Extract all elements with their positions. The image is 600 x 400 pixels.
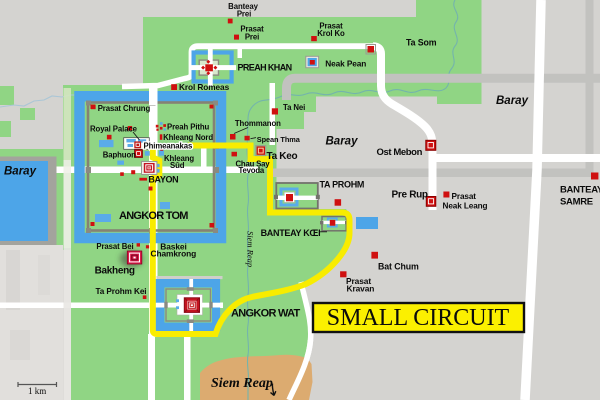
svg-text:Bakheng: Bakheng: [95, 266, 135, 277]
svg-text:Siem Reap: Siem Reap: [211, 376, 273, 391]
svg-text:Neak Leang: Neak Leang: [443, 202, 488, 211]
svg-text:Ta Keo: Ta Keo: [267, 151, 298, 162]
svg-text:Prasat Chrung: Prasat Chrung: [98, 104, 151, 113]
svg-text:Preah Pithu: Preah Pithu: [167, 123, 210, 132]
svg-text:BAYON: BAYON: [148, 175, 178, 185]
svg-text:1 km: 1 km: [28, 386, 46, 396]
svg-text:Pre Rup: Pre Rup: [392, 190, 428, 201]
svg-text:Krol Ko: Krol Ko: [317, 29, 345, 38]
svg-text:BANTEAY KŒI: BANTEAY KŒI: [261, 228, 321, 238]
svg-text:Spean Thma: Spean Thma: [257, 135, 301, 144]
svg-text:Prei: Prei: [245, 33, 259, 42]
svg-text:PREAH KHAN: PREAH KHAN: [238, 63, 292, 73]
svg-text:BANTEAY: BANTEAY: [560, 185, 600, 196]
svg-text:Ost Mebon: Ost Mebon: [377, 147, 423, 158]
svg-text:SMALL CIRCUIT: SMALL CIRCUIT: [327, 305, 510, 331]
svg-text:Thommanon: Thommanon: [235, 119, 281, 128]
svg-text:Royal Palace: Royal Palace: [90, 125, 138, 134]
svg-text:Tevoda: Tevoda: [239, 166, 265, 175]
svg-text:Sûd: Sûd: [170, 161, 185, 170]
svg-text:Kravan: Kravan: [347, 284, 375, 294]
svg-text:Ta Som: Ta Som: [406, 38, 437, 48]
svg-text:SAMRE: SAMRE: [560, 197, 593, 208]
svg-text:Baray: Baray: [496, 95, 529, 107]
svg-text:Prasat: Prasat: [452, 192, 477, 201]
svg-text:ANGKOR TOM: ANGKOR TOM: [119, 210, 188, 222]
svg-text:Neak Pean: Neak Pean: [325, 59, 366, 69]
svg-text:Baray: Baray: [326, 136, 359, 148]
svg-text:Bat Chum: Bat Chum: [378, 262, 419, 272]
svg-text:TA PROHM: TA PROHM: [320, 180, 365, 190]
svg-text:Ta Nei: Ta Nei: [283, 103, 305, 112]
svg-text:Phimeanakas: Phimeanakas: [144, 142, 194, 151]
svg-text:Prasat Bei: Prasat Bei: [96, 242, 133, 251]
svg-text:Baphuon: Baphuon: [103, 151, 136, 160]
svg-text:Krol Romeas: Krol Romeas: [179, 82, 230, 92]
svg-text:ANGKOR WAT: ANGKOR WAT: [231, 308, 301, 320]
svg-text:Baray: Baray: [4, 166, 37, 178]
svg-text:Chamkrong: Chamkrong: [151, 249, 197, 259]
svg-text:Prei: Prei: [237, 10, 251, 19]
svg-text:Ta Prohm Kei: Ta Prohm Kei: [96, 287, 147, 296]
svg-text:Siem Reap: Siem Reap: [246, 231, 256, 267]
